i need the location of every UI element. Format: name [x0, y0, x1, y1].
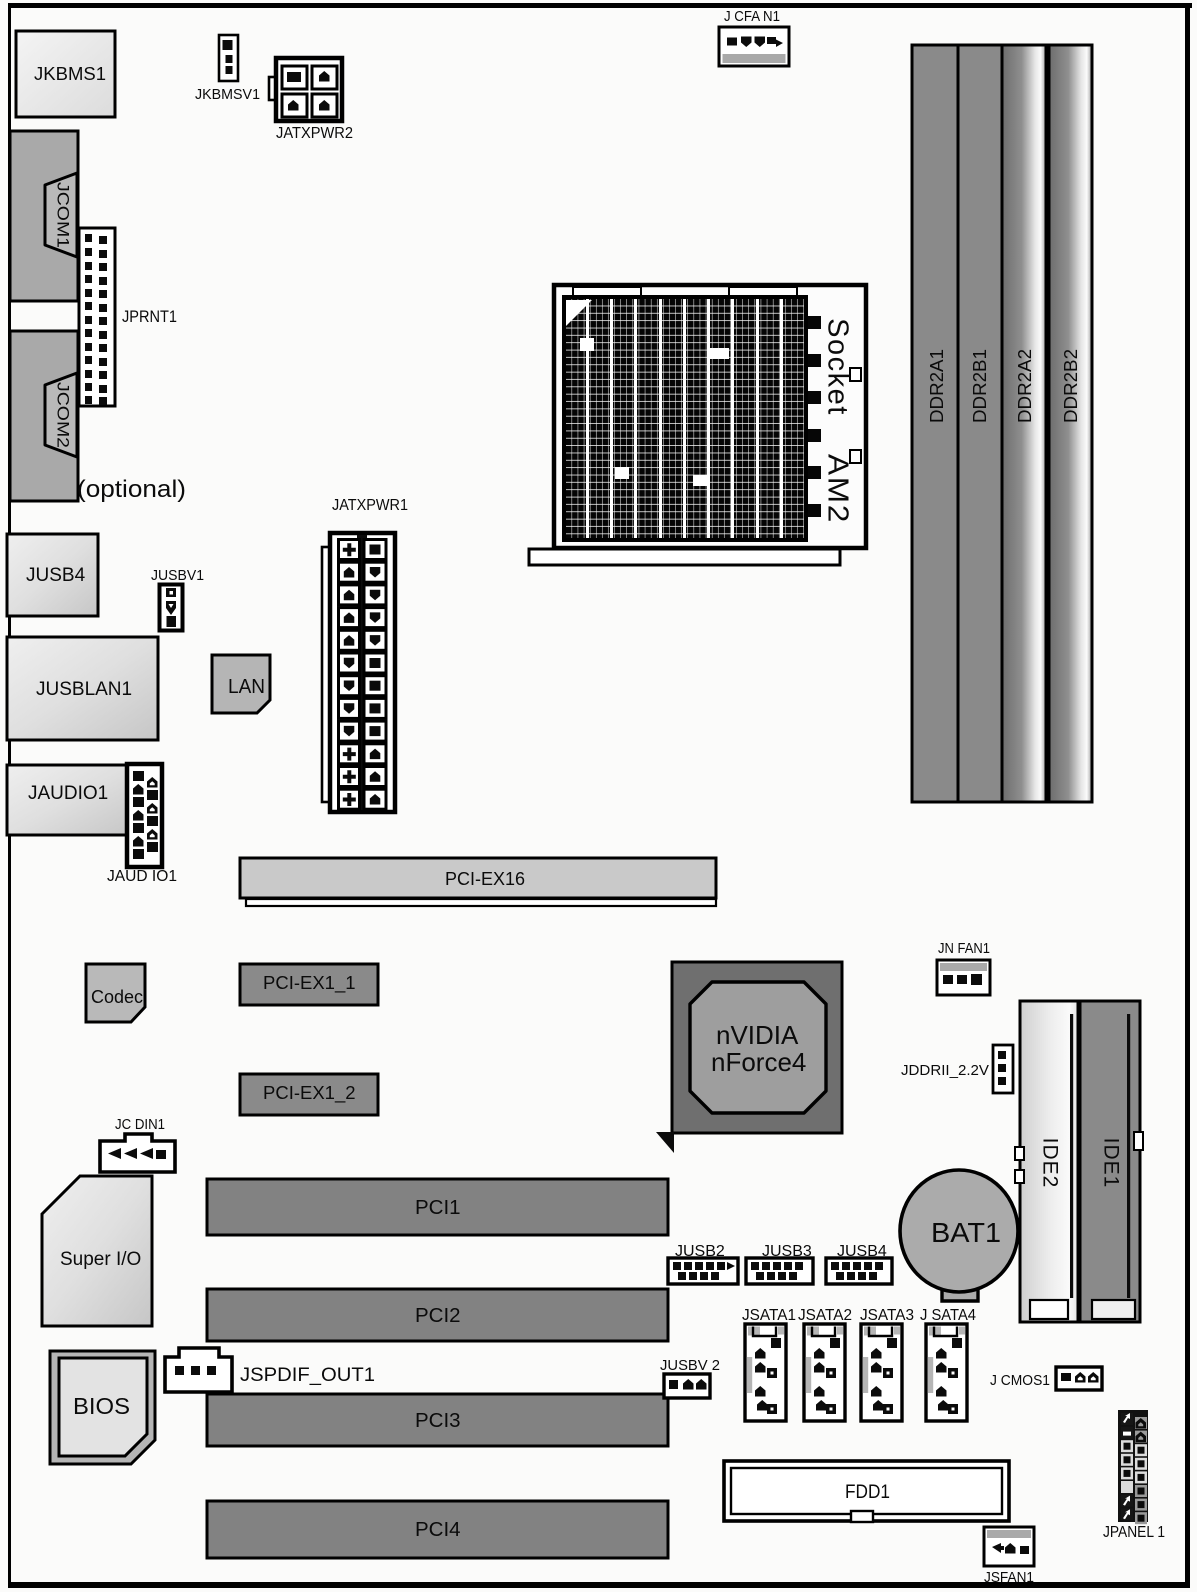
svg-text:PCI-EX16: PCI-EX16 — [445, 869, 525, 889]
svg-text:JATXPWR1: JATXPWR1 — [332, 497, 408, 514]
svg-text:IDE1: IDE1 — [1099, 1138, 1122, 1189]
svg-text:JSPDIF_OUT1: JSPDIF_OUT1 — [240, 1365, 375, 1386]
svg-text:J CFA N1: J CFA N1 — [724, 8, 780, 25]
svg-text:DDR2A2: DDR2A2 — [1015, 349, 1035, 423]
svg-text:JC DIN1: JC DIN1 — [115, 1117, 165, 1133]
svg-text:AM2: AM2 — [821, 454, 853, 524]
svg-text:PCI-EX1_2: PCI-EX1_2 — [263, 1082, 356, 1104]
svg-text:PCI-EX1_1: PCI-EX1_1 — [263, 972, 356, 994]
svg-text:J CMOS1: J CMOS1 — [990, 1373, 1050, 1389]
svg-text:Super I/O: Super I/O — [60, 1249, 141, 1270]
svg-text:JSATA3: JSATA3 — [860, 1307, 914, 1324]
svg-text:JSFAN1: JSFAN1 — [984, 1569, 1034, 1586]
svg-text:LAN: LAN — [228, 676, 265, 698]
svg-text:JKBMS1: JKBMS1 — [34, 63, 106, 84]
svg-text:IDE2: IDE2 — [1038, 1138, 1061, 1189]
svg-text:JUSBV 2: JUSBV 2 — [660, 1357, 720, 1374]
svg-text:JAUDIO1: JAUDIO1 — [28, 783, 108, 804]
svg-text:JSATA1: JSATA1 — [742, 1307, 796, 1324]
svg-text:DDR2A1: DDR2A1 — [927, 349, 947, 423]
svg-text:JUSB4: JUSB4 — [26, 565, 86, 586]
svg-text:FDD1: FDD1 — [845, 1482, 890, 1503]
svg-text:PCI4: PCI4 — [415, 1518, 461, 1541]
svg-text:PCI3: PCI3 — [415, 1409, 461, 1432]
svg-text:nVIDIA: nVIDIA — [716, 1020, 799, 1050]
svg-text:(optional): (optional) — [77, 476, 186, 503]
svg-text:Socket: Socket — [821, 318, 853, 416]
svg-text:Codec: Codec — [91, 987, 143, 1007]
svg-text:BAT1: BAT1 — [931, 1217, 1001, 1248]
svg-text:JCOM1: JCOM1 — [54, 182, 72, 248]
svg-text:PCI1: PCI1 — [415, 1196, 461, 1219]
svg-text:JPRNT1: JPRNT1 — [122, 308, 177, 326]
svg-text:J SATA4: J SATA4 — [920, 1307, 976, 1324]
svg-text:nForce4: nForce4 — [711, 1047, 806, 1077]
svg-text:JAUD IO1: JAUD IO1 — [107, 868, 177, 885]
svg-text:DDR2B1: DDR2B1 — [970, 349, 990, 423]
svg-text:JCOM2: JCOM2 — [54, 382, 72, 448]
svg-text:BIOS: BIOS — [73, 1393, 130, 1419]
svg-text:JPANEL 1: JPANEL 1 — [1103, 1524, 1165, 1541]
svg-text:PCI2: PCI2 — [415, 1304, 461, 1327]
svg-text:JN FAN1: JN FAN1 — [938, 940, 990, 957]
svg-text:JDDRII_2.2V: JDDRII_2.2V — [901, 1062, 989, 1079]
svg-text:JATXPWR2: JATXPWR2 — [276, 125, 353, 142]
svg-text:JKBMSV1: JKBMSV1 — [195, 86, 260, 103]
svg-text:JUSBLAN1: JUSBLAN1 — [36, 679, 132, 700]
svg-text:JUSBV1: JUSBV1 — [151, 568, 204, 584]
svg-text:DDR2B2: DDR2B2 — [1061, 349, 1081, 423]
svg-text:JSATA2: JSATA2 — [798, 1307, 852, 1324]
